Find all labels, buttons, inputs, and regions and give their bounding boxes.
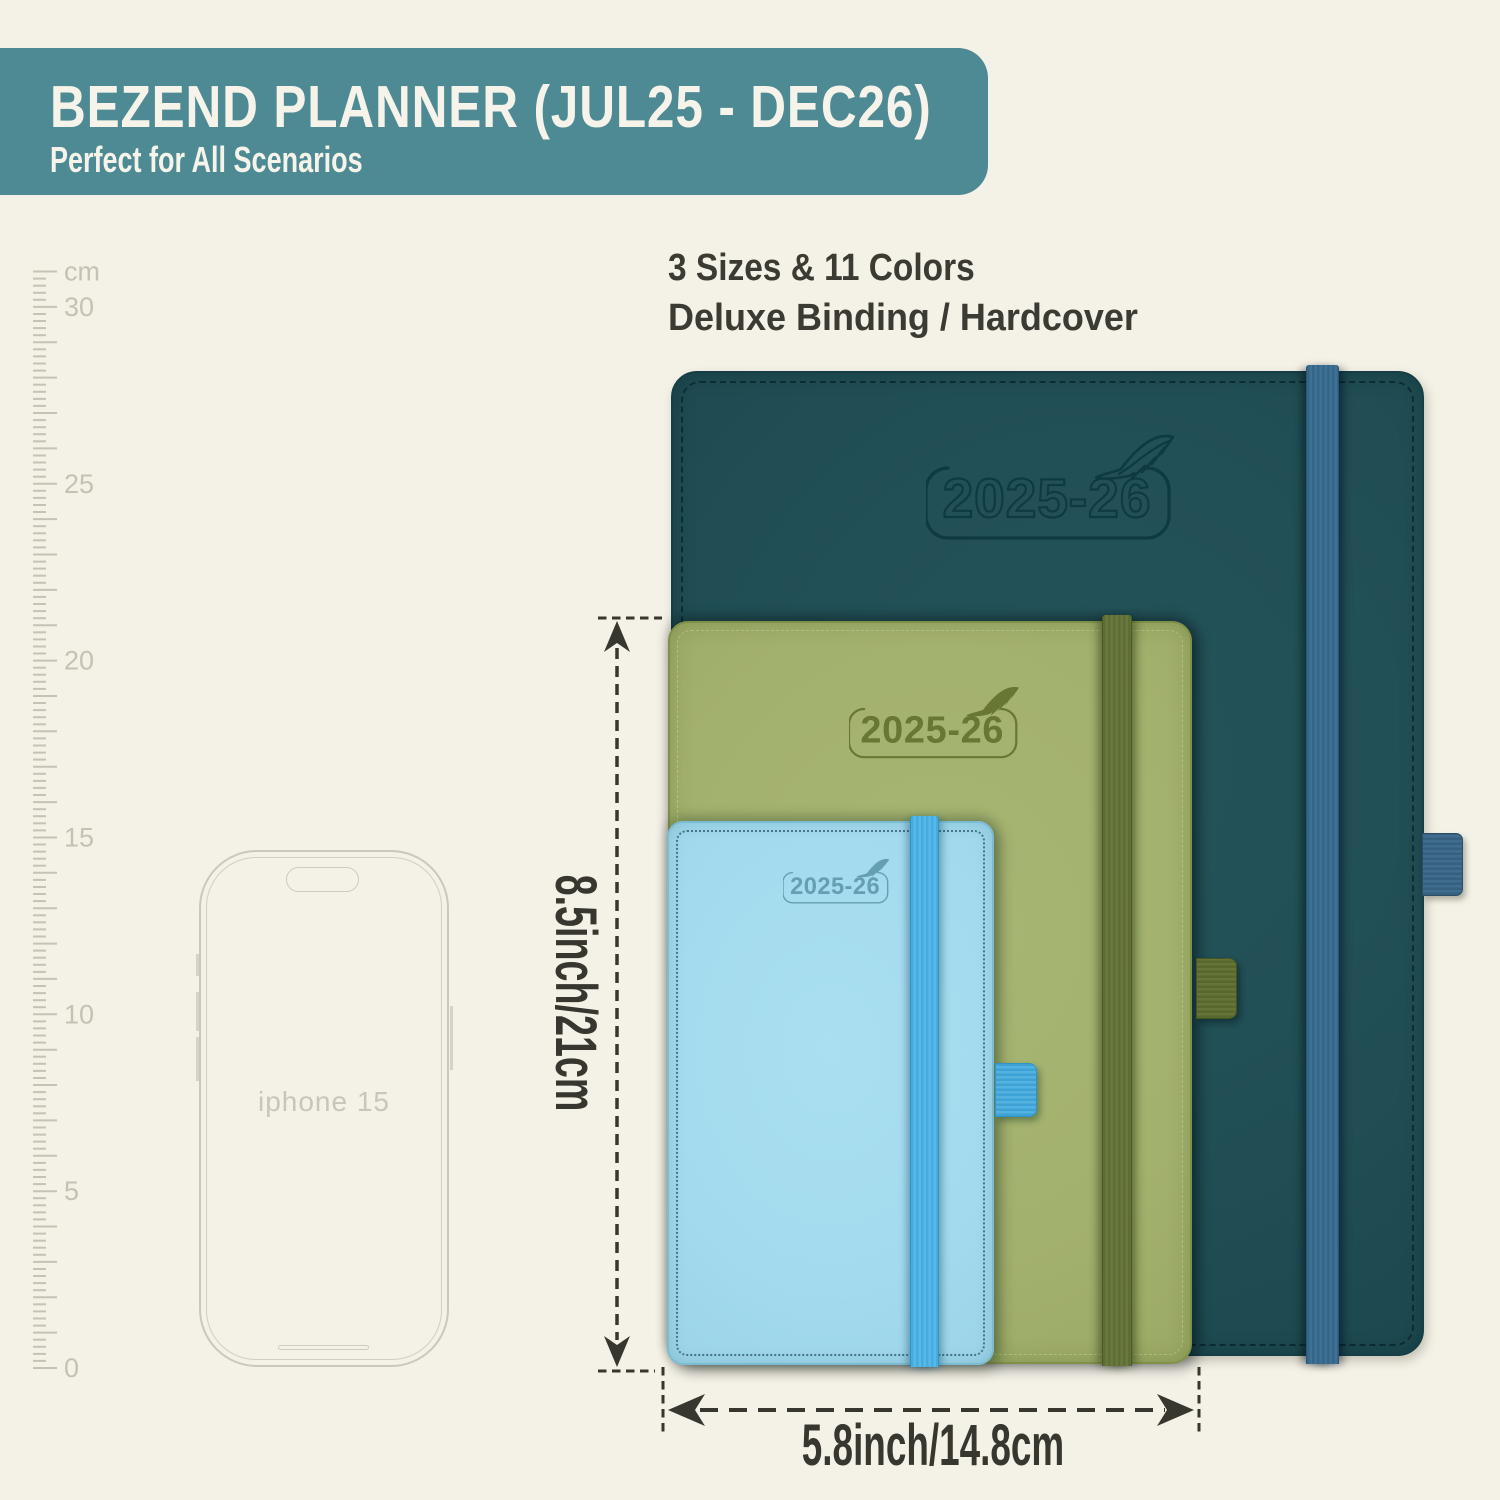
svg-text:5.8inch/14.8cm: 5.8inch/14.8cm: [802, 1414, 1064, 1478]
svg-text:8.5inch/21cm: 8.5inch/21cm: [543, 875, 607, 1112]
